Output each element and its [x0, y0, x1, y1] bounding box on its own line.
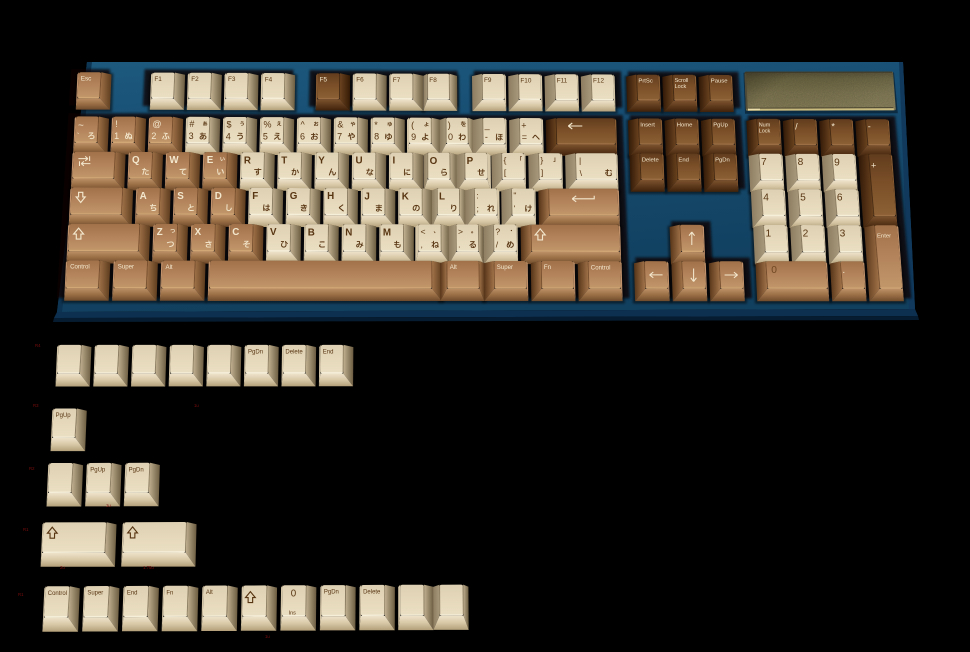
svg-text:I: I	[393, 156, 396, 167]
svg-text:>: >	[458, 227, 463, 237]
svg-text:F: F	[252, 191, 258, 202]
svg-text:1: 1	[766, 228, 772, 239]
svg-text:R1: R1	[23, 527, 29, 532]
svg-text:J: J	[364, 191, 369, 202]
svg-text:F2: F2	[191, 76, 199, 83]
svg-text:R: R	[244, 155, 251, 166]
svg-text:F3: F3	[228, 76, 236, 83]
svg-text:3: 3	[840, 229, 846, 240]
svg-text:.: .	[842, 265, 845, 276]
svg-text:A: A	[140, 191, 147, 202]
svg-text:Super: Super	[118, 264, 134, 271]
svg-text:-: -	[868, 122, 871, 132]
svg-text:End: End	[127, 591, 138, 597]
svg-text:C: C	[232, 227, 239, 238]
svg-text:6: 6	[837, 193, 843, 204]
svg-text:0: 0	[291, 588, 297, 599]
svg-text:3: 3	[189, 131, 194, 141]
svg-text:G: G	[290, 191, 298, 202]
svg-text:F7: F7	[393, 77, 401, 84]
svg-text:+: +	[521, 120, 526, 130]
svg-text:Delete: Delete	[363, 590, 381, 596]
svg-text:2: 2	[151, 131, 156, 141]
svg-text:Y: Y	[318, 156, 325, 167]
svg-text:PgDn: PgDn	[324, 590, 339, 596]
svg-text:Alt: Alt	[450, 264, 457, 271]
svg-text:5: 5	[263, 131, 268, 141]
svg-text:Fn: Fn	[544, 264, 551, 271]
svg-text:F9: F9	[484, 77, 492, 84]
svg-text:2u: 2u	[60, 565, 65, 570]
svg-text:Delete: Delete	[642, 157, 660, 163]
svg-text:1u: 1u	[194, 403, 199, 408]
svg-text:1u: 1u	[265, 634, 270, 639]
svg-text:Alt: Alt	[166, 264, 173, 271]
svg-text:F12: F12	[593, 78, 604, 85]
svg-text:5: 5	[800, 193, 806, 204]
svg-text:S: S	[177, 191, 184, 202]
svg-text:Delete: Delete	[285, 348, 303, 355]
svg-text:F8: F8	[429, 77, 437, 84]
svg-text:;: ;	[477, 203, 479, 213]
svg-text:F1: F1	[154, 76, 162, 83]
svg-text:R3: R3	[33, 403, 39, 408]
svg-text:PrtSc: PrtSc	[638, 78, 652, 84]
svg-text:(: (	[411, 120, 414, 130]
svg-text:Esc: Esc	[81, 76, 92, 83]
svg-text:2: 2	[803, 229, 809, 240]
svg-text:+: +	[871, 161, 876, 171]
svg-text:]: ]	[541, 168, 543, 178]
svg-text:F11: F11	[557, 78, 568, 85]
svg-text:Alt: Alt	[206, 590, 213, 596]
svg-text:B: B	[308, 227, 315, 238]
svg-text:PgUp: PgUp	[713, 123, 728, 129]
svg-text:N: N	[345, 227, 352, 238]
svg-text:W: W	[169, 155, 179, 166]
svg-text:K: K	[402, 191, 409, 202]
svg-text:1.75u: 1.75u	[143, 565, 154, 570]
svg-text:Control: Control	[591, 264, 611, 271]
svg-text:U: U	[356, 156, 363, 167]
svg-text:Lock: Lock	[675, 84, 687, 90]
svg-text:,: ,	[421, 240, 423, 250]
svg-text:Enter: Enter	[877, 234, 891, 240]
svg-text:{: {	[504, 155, 507, 165]
svg-text:|: |	[579, 155, 581, 165]
svg-text:?: ?	[495, 227, 500, 237]
svg-text::: :	[476, 191, 478, 201]
svg-text:9: 9	[411, 132, 416, 142]
svg-text:M: M	[383, 227, 391, 238]
svg-text:*: *	[831, 121, 835, 131]
svg-text:PgDn: PgDn	[715, 158, 730, 164]
svg-text:`: `	[77, 131, 80, 141]
svg-text:F5: F5	[320, 77, 328, 84]
svg-text:Control: Control	[70, 264, 90, 271]
svg-text:8: 8	[798, 157, 804, 168]
svg-text:0: 0	[448, 132, 453, 142]
svg-text:E: E	[207, 155, 214, 166]
svg-text:P: P	[467, 156, 474, 167]
svg-text:%: %	[264, 119, 272, 129]
svg-text:X: X	[195, 227, 202, 238]
svg-text:#: #	[189, 119, 194, 129]
svg-text:F10: F10	[520, 77, 531, 84]
svg-text:): )	[448, 120, 451, 130]
svg-text:4: 4	[226, 131, 231, 141]
svg-text:L: L	[439, 191, 445, 202]
svg-text:End: End	[678, 157, 688, 163]
svg-text:8: 8	[374, 132, 379, 142]
svg-text:PgUp: PgUp	[56, 412, 72, 419]
svg-text:": "	[513, 191, 516, 201]
svg-text:.: .	[458, 240, 460, 250]
svg-text:D: D	[215, 191, 222, 202]
svg-text:T: T	[281, 155, 287, 166]
svg-text:Q: Q	[132, 155, 140, 166]
svg-text:F6: F6	[356, 77, 364, 84]
svg-text:Pause: Pause	[711, 79, 728, 85]
svg-text:PgDn: PgDn	[248, 348, 263, 355]
svg-text:=: =	[522, 132, 527, 142]
svg-text:R2: R2	[29, 466, 35, 471]
svg-text:O: O	[430, 156, 438, 167]
svg-text:End: End	[323, 348, 334, 355]
svg-text:7: 7	[761, 157, 767, 168]
svg-text:$: $	[227, 119, 232, 129]
svg-text:6: 6	[300, 132, 305, 142]
svg-text:R1: R1	[18, 592, 24, 597]
svg-text:PgUp: PgUp	[90, 466, 106, 473]
svg-text:9: 9	[834, 157, 840, 168]
svg-text:-: -	[485, 132, 488, 142]
svg-text:4: 4	[763, 193, 769, 204]
svg-text:V: V	[270, 227, 277, 238]
svg-text:PgDn: PgDn	[129, 466, 144, 473]
svg-text:Super: Super	[497, 264, 513, 271]
svg-text:R4: R4	[35, 343, 41, 348]
svg-text:1: 1	[114, 131, 119, 141]
svg-text:0: 0	[771, 265, 777, 276]
svg-text:}: }	[540, 155, 543, 165]
svg-text:*: *	[374, 120, 378, 130]
svg-text:<: <	[421, 227, 426, 237]
svg-text:Control: Control	[48, 591, 67, 597]
svg-text:&: &	[337, 120, 343, 130]
svg-text:Ins: Ins	[289, 610, 297, 616]
svg-text:7: 7	[337, 132, 342, 142]
svg-text:Lock: Lock	[759, 128, 771, 134]
svg-text:Insert: Insert	[640, 122, 655, 128]
svg-text:Z: Z	[157, 227, 163, 238]
svg-text:!: !	[115, 119, 118, 129]
svg-text:_: _	[484, 120, 491, 130]
svg-text:@: @	[152, 119, 161, 129]
svg-text:F4: F4	[265, 76, 273, 83]
svg-text:Home: Home	[677, 122, 693, 128]
svg-text:Fn: Fn	[166, 590, 173, 596]
svg-text:1u: 1u	[106, 503, 111, 508]
svg-text:H: H	[327, 191, 334, 202]
svg-text:Super: Super	[87, 591, 103, 597]
